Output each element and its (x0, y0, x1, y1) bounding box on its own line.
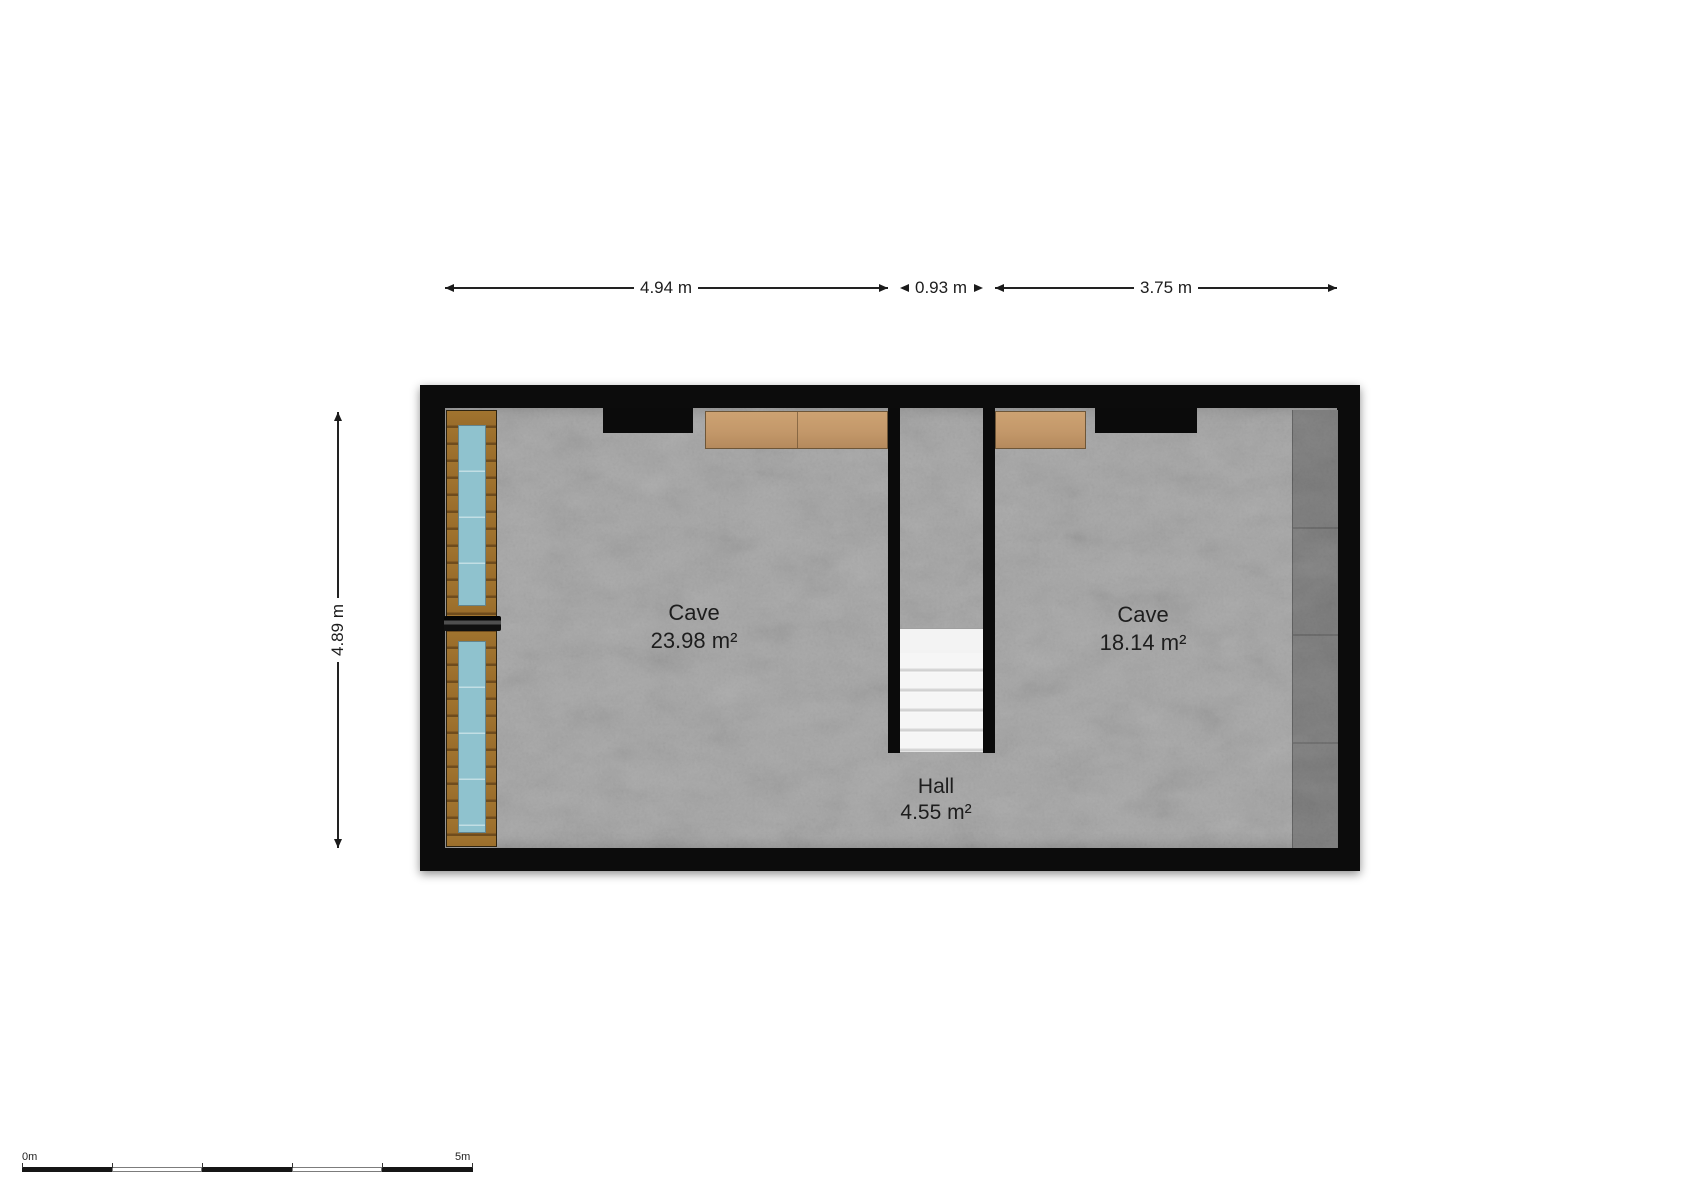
dim-arrow-left-icon (995, 284, 1004, 292)
scale-segment (382, 1167, 473, 1172)
top-wall-pillar-left (603, 408, 693, 433)
exterior-walls (420, 385, 1360, 871)
scale-tick (22, 1163, 23, 1168)
scale-tick (112, 1163, 113, 1168)
room-area: 4.55 m² (900, 800, 971, 826)
room-area: 23.98 m² (651, 627, 738, 655)
stair-corridor-wall-left (888, 408, 900, 753)
wood-beam-right (995, 411, 1086, 449)
wood-beam-left (705, 411, 888, 449)
room-area: 18.14 m² (1100, 629, 1187, 657)
scale-tick (202, 1163, 203, 1168)
scale-segment (22, 1167, 112, 1172)
room-name: Cave (1100, 601, 1187, 629)
dim-arrow-left-icon (445, 284, 454, 292)
dimension-label: 4.89 m (328, 598, 348, 662)
scale-start-label: 0m (22, 1151, 37, 1163)
scale-end-label: 5m (455, 1151, 470, 1163)
scale-tick (292, 1163, 293, 1168)
glass-panel-bottom (458, 641, 486, 833)
dim-arrow-left-icon (900, 284, 909, 292)
glass-panel-top (458, 425, 486, 606)
dim-arrow-up-icon (334, 412, 342, 421)
room-name: Hall (900, 774, 971, 800)
window-frame-divider (444, 616, 501, 631)
floor-plan-page: 4.94 m 0.93 m 3.75 m 4.89 m (0, 0, 1696, 1200)
top-wall-pillar-right (1095, 408, 1197, 433)
room-name: Cave (651, 599, 738, 627)
staircase (900, 628, 983, 752)
scale-segment (112, 1167, 202, 1172)
stair-treads (900, 653, 983, 752)
wood-framed-window-left (446, 410, 497, 847)
stair-corridor-wall-right (983, 408, 995, 753)
beam-seam (797, 412, 798, 448)
scale-tick (472, 1163, 473, 1168)
dim-arrow-right-icon (879, 284, 888, 292)
scale-segment (202, 1167, 292, 1172)
scale-segment (292, 1167, 382, 1172)
dimension-label: 3.75 m (1134, 278, 1198, 298)
room-label-cave-left: Cave 23.98 m² (651, 599, 738, 655)
dimension-label: 4.94 m (634, 278, 698, 298)
scale-bar (22, 1167, 473, 1172)
dimension-label: 0.93 m (912, 278, 970, 298)
dim-arrow-down-icon (334, 839, 342, 848)
scale-tick (382, 1163, 383, 1168)
room-label-hall: Hall 4.55 m² (900, 774, 971, 826)
dim-arrow-right-icon (974, 284, 983, 292)
dim-arrow-right-icon (1328, 284, 1337, 292)
room-label-cave-right: Cave 18.14 m² (1100, 601, 1187, 657)
